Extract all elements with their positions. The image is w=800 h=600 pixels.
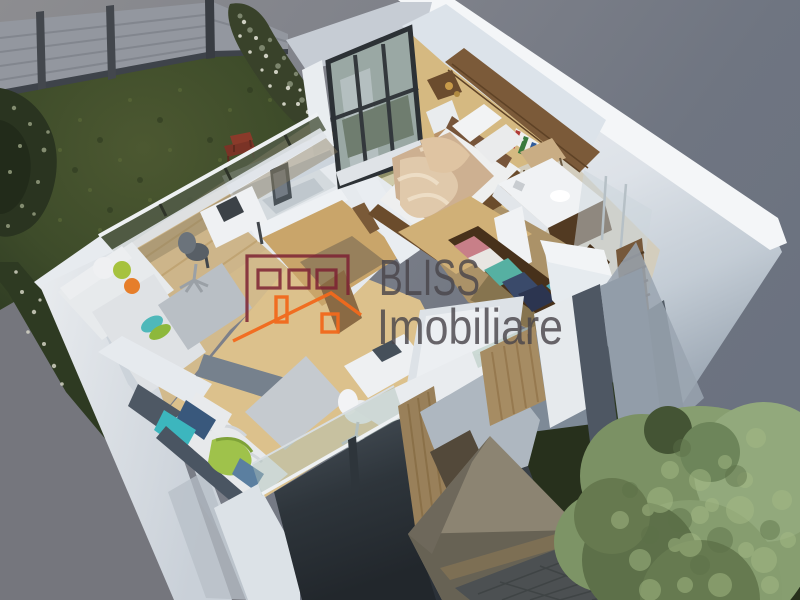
svg-text:Imobiliare: Imobiliare bbox=[377, 299, 563, 355]
svg-text:BLISS: BLISS bbox=[379, 249, 480, 306]
